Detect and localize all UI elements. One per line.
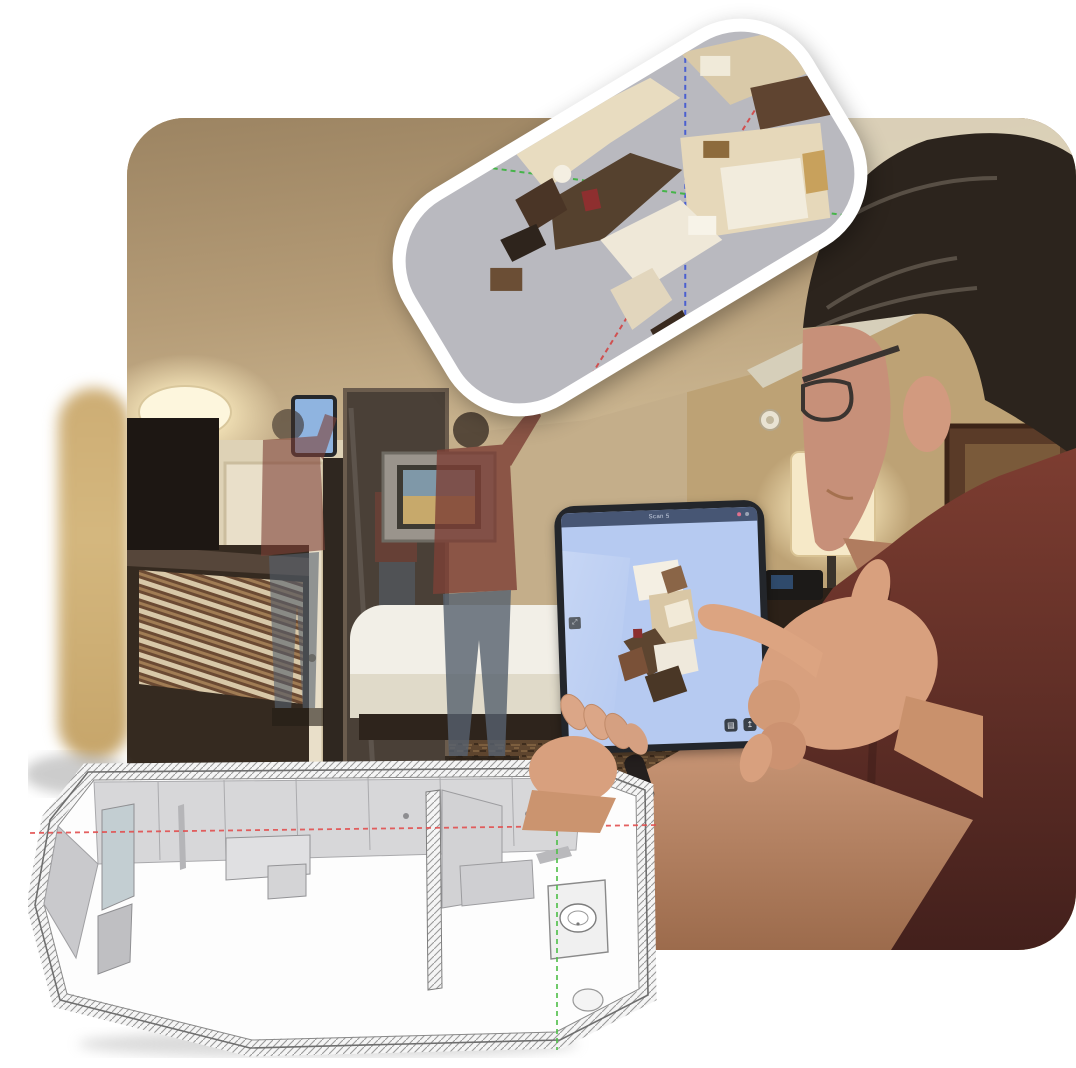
- toolbar-buttons: ▤ ↥: [724, 718, 756, 732]
- bathroom-partition: [460, 860, 534, 906]
- page-button: ▤: [724, 718, 737, 731]
- gold-blur-shape: [58, 388, 130, 760]
- bed-base: [359, 714, 595, 740]
- sink-basin: [560, 904, 596, 932]
- ipad-screen: Scan 5 ⤢ ▤ ↥: [561, 507, 765, 748]
- cad-floorplan-model: [28, 746, 662, 1058]
- wall-knob-1: [403, 813, 409, 819]
- sink-drain: [576, 922, 579, 925]
- closet-panel: [98, 904, 132, 974]
- scan-title: Scan 5: [649, 514, 670, 521]
- export-icon: ↥: [746, 720, 753, 729]
- bathroom-wall: [426, 790, 442, 990]
- tv: [127, 418, 219, 550]
- toilet: [573, 989, 603, 1011]
- page-icon: ▤: [727, 721, 735, 730]
- record-dot-icon: [737, 512, 741, 516]
- side-box: [268, 864, 306, 899]
- sprinkler-center: [766, 416, 774, 424]
- export-button: ↥: [743, 718, 756, 731]
- ipad: Scan 5 ⤢ ▤ ↥: [554, 499, 773, 754]
- wall-panels: [94, 778, 582, 864]
- composite-scene: Scan 5 ⤢ ▤ ↥: [0, 0, 1076, 1068]
- ear: [903, 376, 951, 452]
- wall-knob-2: [525, 811, 531, 817]
- phone-display: [771, 575, 793, 589]
- status-dot-icon: [745, 512, 749, 516]
- window-pane: [102, 804, 134, 910]
